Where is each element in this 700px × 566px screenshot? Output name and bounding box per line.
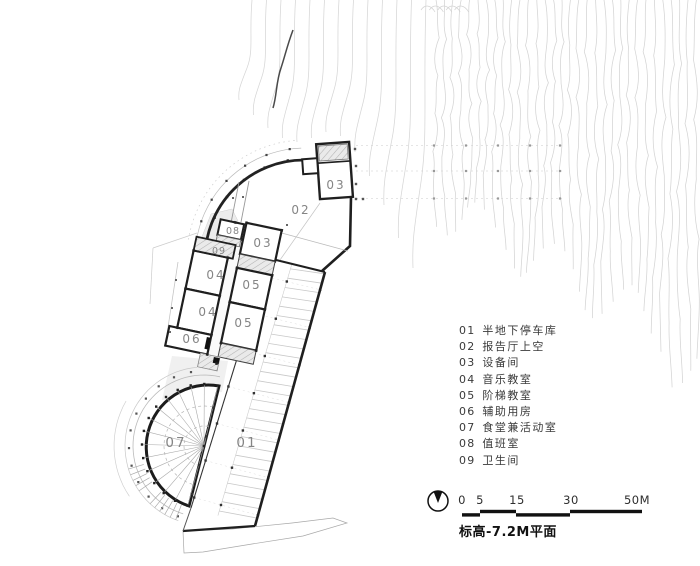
decor-line xyxy=(177,389,179,391)
legend-item: 06辅助用房 xyxy=(459,404,557,420)
boundary-wall xyxy=(322,197,351,271)
scale-tick-50m: 50M xyxy=(624,493,650,507)
legend-num: 04 xyxy=(459,372,475,388)
legend-label: 音乐教室 xyxy=(482,372,532,388)
decor-line xyxy=(176,505,182,520)
decor-line xyxy=(626,0,632,285)
decor-line xyxy=(187,505,189,507)
decor-line xyxy=(145,398,147,400)
scale-segment xyxy=(462,513,480,516)
decor-line xyxy=(529,197,531,199)
decor-line xyxy=(234,221,237,224)
decor-line xyxy=(212,406,214,408)
decor-line xyxy=(219,342,222,345)
decor-line xyxy=(500,0,506,250)
legend-item: 02报告厅上空 xyxy=(459,339,557,355)
decor-line xyxy=(433,170,435,172)
decor-line xyxy=(220,504,222,506)
walkway-line xyxy=(241,181,249,222)
room-label-04-upper: 04 xyxy=(206,268,225,282)
decor-line xyxy=(340,0,353,136)
decor-line xyxy=(163,492,165,494)
decor-line xyxy=(264,355,266,357)
decor-line xyxy=(433,197,435,199)
decor-line xyxy=(190,371,192,373)
decor-line xyxy=(326,0,339,132)
scale-tick-15: 15 xyxy=(509,493,525,507)
decor-line xyxy=(114,401,129,496)
decor-line xyxy=(135,413,137,415)
decor-line xyxy=(190,384,192,386)
decor-line xyxy=(275,318,277,320)
decor-line xyxy=(232,197,234,199)
decor-line xyxy=(211,199,213,201)
decor-line xyxy=(133,473,147,480)
legend-num: 01 xyxy=(459,323,475,339)
decor-line xyxy=(559,144,561,146)
decor-line xyxy=(551,0,557,244)
decor-line xyxy=(609,0,615,302)
room-label-07: 07 xyxy=(165,435,186,451)
decor-line xyxy=(509,0,515,269)
room-label-08: 08 xyxy=(226,226,240,237)
decor-line xyxy=(660,0,666,352)
entry-vestibule xyxy=(302,158,318,174)
decor-line xyxy=(155,405,157,407)
decor-line xyxy=(205,435,207,437)
decor-line xyxy=(215,362,218,365)
decor-line xyxy=(175,279,177,281)
decor-line xyxy=(677,0,683,383)
scale-tick-30: 30 xyxy=(563,493,579,507)
decor-line xyxy=(191,493,193,495)
decor-line xyxy=(467,0,473,208)
decor-line xyxy=(286,280,288,282)
decor-line xyxy=(450,0,456,232)
decor-line xyxy=(282,0,295,138)
decor-line xyxy=(153,482,155,484)
decor-line xyxy=(206,353,209,356)
decor-line xyxy=(465,144,467,146)
decor-line xyxy=(311,0,324,138)
decor-line xyxy=(526,0,532,273)
decor-line xyxy=(529,170,531,172)
legend-label: 报告厅上空 xyxy=(482,339,545,355)
floor-plan-drawing: 03 02 03 08 09 04 05 04 05 06 07 01 0 5 … xyxy=(0,0,700,566)
legend-item: 05阶梯教室 xyxy=(459,388,557,404)
decor-line xyxy=(184,287,187,290)
decor-line xyxy=(176,326,179,329)
room-label-03-top: 03 xyxy=(326,178,345,192)
legend-label: 辅助用房 xyxy=(482,404,532,420)
floor-plan-sheet: 03 02 03 08 09 04 05 04 05 06 07 01 0 5 … xyxy=(0,0,700,566)
decor-line xyxy=(130,469,145,475)
decor-line xyxy=(142,457,144,459)
room-label-02: 02 xyxy=(291,203,310,217)
decor-line xyxy=(592,0,598,318)
decor-line xyxy=(148,496,150,498)
decor-line xyxy=(534,0,540,261)
decor-line xyxy=(218,294,221,297)
scale-tick-0: 0 xyxy=(458,493,466,507)
decor-line xyxy=(171,307,173,309)
decor-line xyxy=(200,220,202,222)
legend-label: 值班室 xyxy=(482,436,520,452)
decor-line xyxy=(559,0,565,251)
decor-line xyxy=(231,467,233,469)
decor-line xyxy=(643,0,649,311)
decor-line xyxy=(169,331,171,333)
decor-line xyxy=(542,0,548,249)
decor-line xyxy=(576,0,582,292)
decor-line xyxy=(165,396,167,398)
decor-line xyxy=(263,308,266,311)
decor-line xyxy=(355,0,368,152)
legend-label: 阶梯教室 xyxy=(482,388,532,404)
decor-line xyxy=(255,349,258,352)
decor-line xyxy=(355,198,357,200)
legend-item: 09卫生间 xyxy=(459,453,557,469)
scale-segment xyxy=(516,513,570,516)
room-label-04-lower: 04 xyxy=(198,305,217,319)
decor-line xyxy=(235,266,238,269)
decor-line xyxy=(226,256,229,259)
legend-item: 04音乐教室 xyxy=(459,372,557,388)
legend-item: 08值班室 xyxy=(459,436,557,452)
scale-bar: 0 5 15 30 50M xyxy=(428,491,650,517)
decor-line xyxy=(668,0,674,387)
scale-tick-5: 5 xyxy=(476,493,484,507)
decor-line xyxy=(217,384,219,386)
decor-line xyxy=(158,385,160,387)
decor-line xyxy=(210,333,213,336)
decor-line xyxy=(413,0,426,268)
decor-line xyxy=(239,0,252,100)
site-line xyxy=(150,248,153,304)
legend-num: 09 xyxy=(459,453,475,469)
decor-line xyxy=(694,0,700,359)
legend-item: 03设备间 xyxy=(459,355,557,371)
room-label-03-mid: 03 xyxy=(253,236,272,250)
decor-line xyxy=(635,0,641,293)
scale-segment xyxy=(570,510,642,513)
decor-line xyxy=(170,503,177,518)
decor-line xyxy=(529,144,531,146)
decor-line xyxy=(362,198,364,200)
decor-line xyxy=(280,229,283,232)
decor-line xyxy=(192,249,195,252)
decor-line xyxy=(286,224,288,226)
decor-line xyxy=(458,0,464,220)
legend-label: 设备间 xyxy=(482,355,520,371)
legend-num: 02 xyxy=(459,339,475,355)
decor-line xyxy=(253,0,266,115)
legend-num: 08 xyxy=(459,436,475,452)
decor-line xyxy=(225,180,227,182)
decor-line xyxy=(492,0,498,228)
room-label-01: 01 xyxy=(236,435,257,451)
legend-num: 03 xyxy=(459,355,475,371)
decor-line xyxy=(483,0,489,210)
decor-line xyxy=(398,0,411,238)
stair-hatch xyxy=(318,144,348,161)
decor-line xyxy=(271,274,274,277)
decor-line xyxy=(651,0,657,334)
decor-line xyxy=(297,0,310,142)
decor-line xyxy=(242,429,244,431)
decor-line xyxy=(465,170,467,172)
decor-line xyxy=(141,443,143,445)
decor-line xyxy=(355,165,357,167)
decor-line xyxy=(242,196,244,198)
decor-line xyxy=(369,0,382,176)
legend-label: 食堂兼活动室 xyxy=(482,420,557,436)
decor-line xyxy=(433,0,439,227)
decor-line xyxy=(497,197,499,199)
decor-line xyxy=(497,144,499,146)
decor-line xyxy=(139,482,152,491)
decor-line xyxy=(131,465,133,467)
decor-line xyxy=(203,383,205,385)
decor-line xyxy=(618,0,624,290)
decor-line xyxy=(601,0,607,314)
legend-item: 01半地下停车库 xyxy=(459,323,557,339)
decor-line xyxy=(268,0,281,128)
decor-line xyxy=(165,501,173,515)
decor-line xyxy=(384,0,397,205)
legend-label: 半地下停车库 xyxy=(482,323,557,339)
decor-line xyxy=(584,0,590,310)
decor-line xyxy=(354,148,356,150)
decor-line xyxy=(143,430,145,432)
decor-line xyxy=(203,445,206,448)
decor-line xyxy=(174,500,176,502)
decor-line xyxy=(265,154,267,156)
decor-line xyxy=(559,170,561,172)
room-label-09: 09 xyxy=(212,246,226,257)
decor-line xyxy=(355,183,357,185)
decor-line xyxy=(517,0,523,277)
decor-line xyxy=(685,0,691,371)
decor-line xyxy=(289,148,291,150)
room-label-05-lower: 05 xyxy=(234,316,253,330)
legend-item: 07食堂兼活动室 xyxy=(459,420,557,436)
decor-line xyxy=(130,429,132,431)
decor-line xyxy=(245,221,248,224)
room-label-06: 06 xyxy=(182,332,201,346)
drawing-title: 标高-7.2M平面 xyxy=(459,521,557,540)
decor-line xyxy=(173,376,175,378)
decor-line xyxy=(455,6,469,12)
legend-num: 05 xyxy=(459,388,475,404)
decor-line xyxy=(228,300,231,303)
decor-line xyxy=(198,464,200,466)
decor-line xyxy=(253,392,255,394)
room-label-05-upper: 05 xyxy=(242,278,261,292)
decor-line xyxy=(148,417,150,419)
decor-line xyxy=(475,0,481,203)
scale-segment xyxy=(480,510,516,513)
decor-line xyxy=(441,0,447,235)
decor-line xyxy=(465,197,467,199)
decor-line xyxy=(128,447,130,449)
legend-num: 06 xyxy=(459,404,475,420)
legend-label: 卫生间 xyxy=(482,453,520,469)
decor-line xyxy=(433,144,435,146)
site-line xyxy=(153,233,197,248)
decor-line xyxy=(559,197,561,199)
decor-line xyxy=(244,165,246,167)
decor-line xyxy=(146,470,148,472)
decor-line xyxy=(567,0,573,269)
legend-num: 07 xyxy=(459,420,475,436)
decor-line xyxy=(137,481,139,483)
room-legend: 01半地下停车库 02报告厅上空 03设备间 04音乐教室 05阶梯教室 06辅… xyxy=(459,323,557,469)
decor-line xyxy=(497,170,499,172)
